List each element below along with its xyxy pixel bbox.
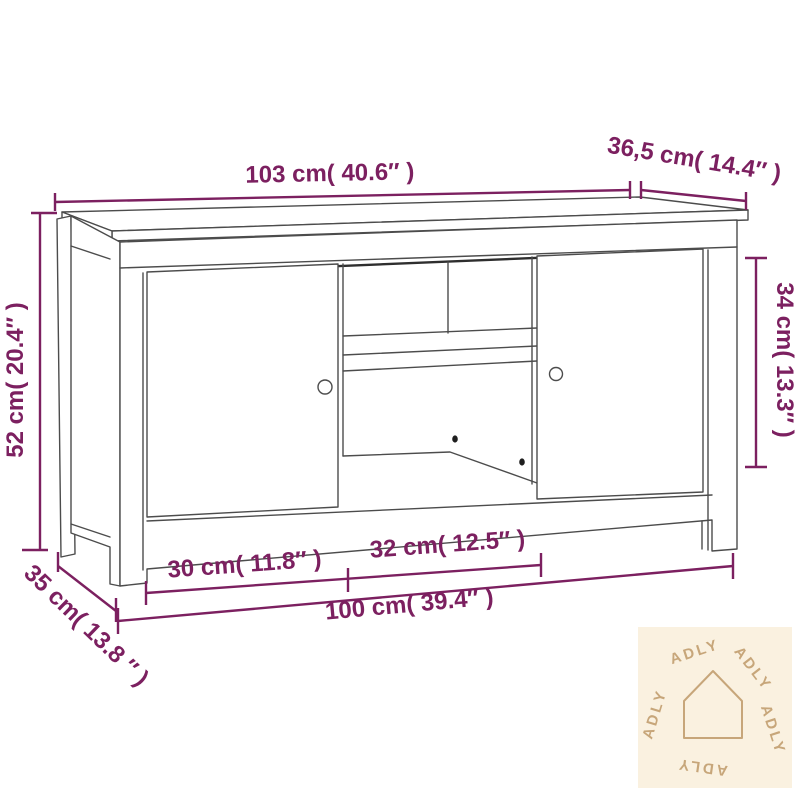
cabinet-left-side-panel bbox=[71, 216, 120, 586]
dimension-diagram: 103 cm( 40.6″ ) 36,5 cm( 14.4″ ) 52 cm( … bbox=[0, 0, 800, 800]
left-door bbox=[147, 264, 338, 517]
dim-height: 52 cm( 20.4″ ) bbox=[2, 213, 57, 550]
dim-top-depth-label: 36,5 cm( 14.4″ ) bbox=[605, 132, 783, 188]
cabinet bbox=[57, 197, 748, 586]
dim-inner-height: 34 cm( 13.3″ ) bbox=[745, 258, 798, 467]
dim-top-width-label: 103 cm( 40.6″ ) bbox=[245, 158, 414, 189]
screw-hole-left bbox=[452, 435, 458, 442]
dim-height-label: 52 cm( 20.4″ ) bbox=[2, 302, 29, 458]
dim-inner-height-label: 34 cm( 13.3″ ) bbox=[771, 282, 798, 438]
dim-base-width-label: 100 cm( 39.4″ ) bbox=[324, 583, 495, 625]
right-door-knob bbox=[550, 368, 563, 381]
adly-logo: ADLY ADLY ADLY ADLY ADLY bbox=[638, 627, 792, 788]
screw-hole-right bbox=[519, 458, 525, 465]
left-door-knob bbox=[318, 380, 332, 394]
